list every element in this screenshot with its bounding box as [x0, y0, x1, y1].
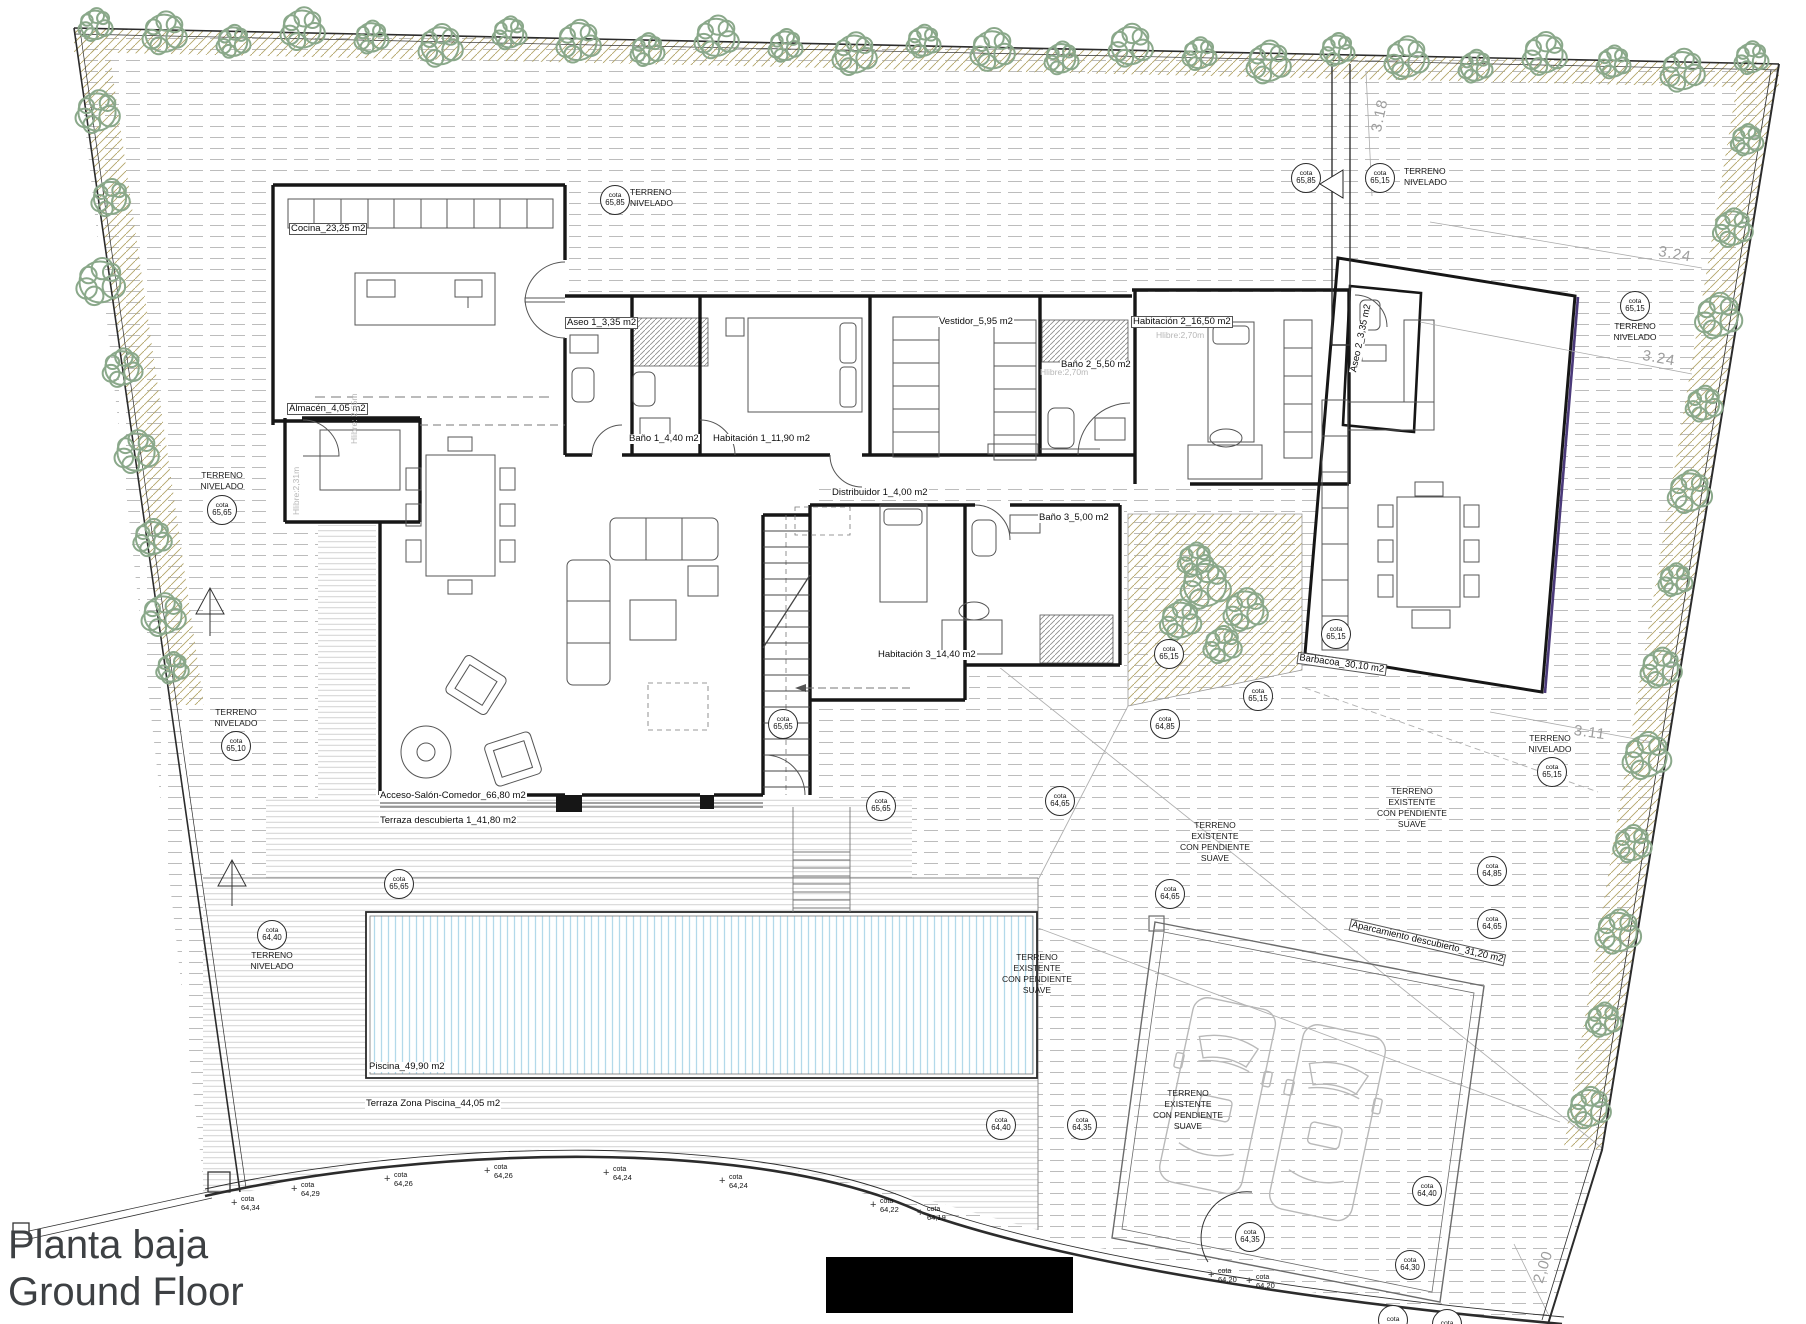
redaction-box — [826, 1257, 1073, 1313]
title-en: Ground Floor — [8, 1269, 244, 1316]
floor-plan-drawing — [0, 0, 1806, 1324]
drawing-title: Planta baja Ground Floor — [8, 1222, 244, 1316]
title-es: Planta baja — [8, 1222, 244, 1269]
floorplan-page: Cocina_23,25 m2Almacén_4,05 m2Aseo 1_3,3… — [0, 0, 1806, 1324]
